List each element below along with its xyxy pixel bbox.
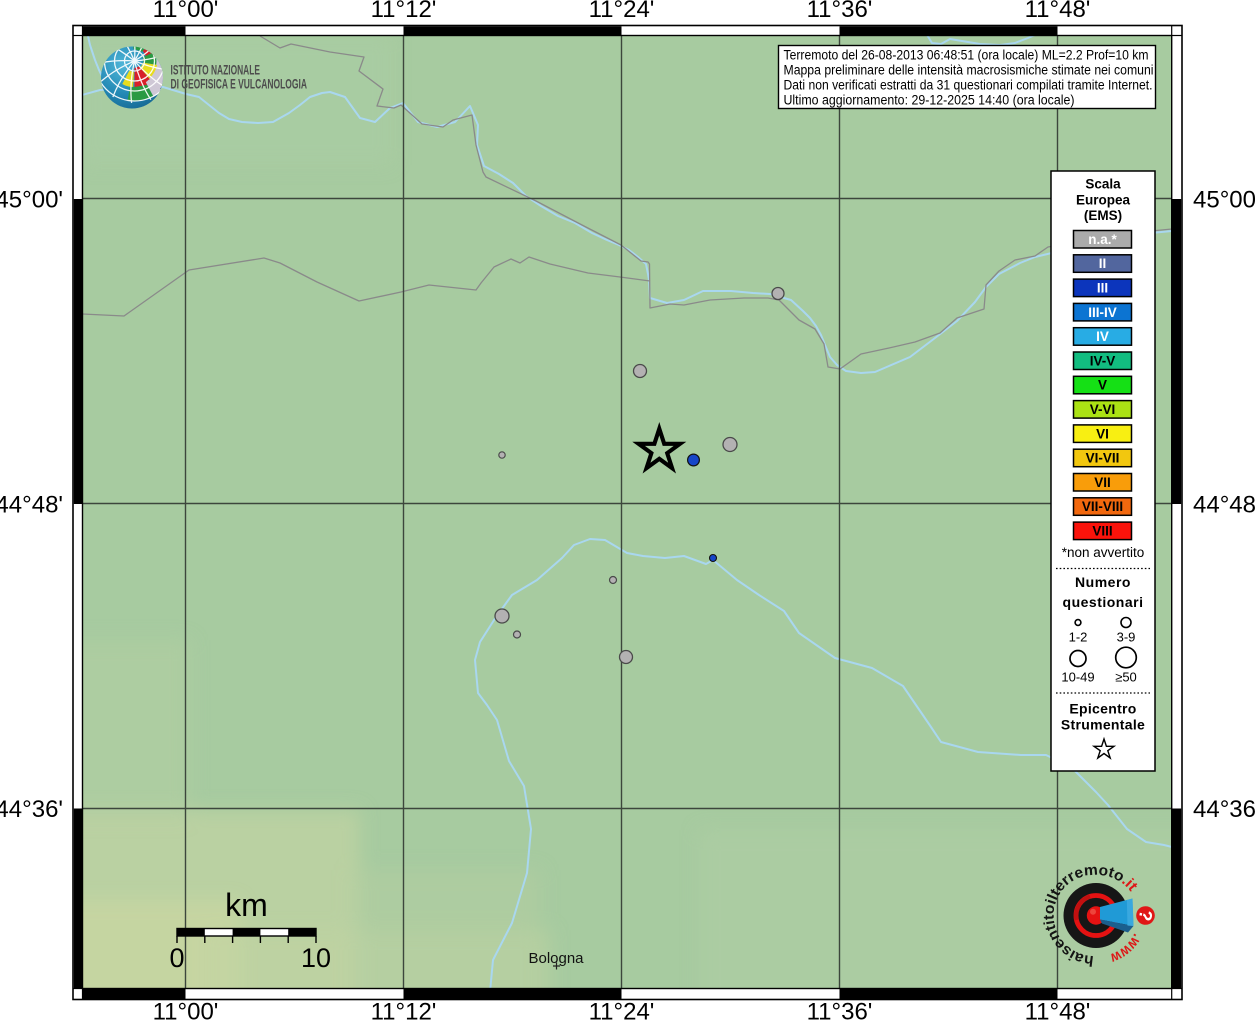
svg-text:≥50: ≥50 xyxy=(1115,670,1137,685)
svg-text:DI GEOFISICA E VULCANOLOGIA: DI GEOFISICA E VULCANOLOGIA xyxy=(171,77,308,92)
svg-text:IV: IV xyxy=(1096,329,1109,344)
svg-text:II: II xyxy=(1099,256,1107,271)
svg-text:V: V xyxy=(1098,378,1107,393)
svg-text:n.a.*: n.a.* xyxy=(1088,232,1117,247)
svg-text:11°36': 11°36' xyxy=(807,999,873,1024)
svg-text:0: 0 xyxy=(169,943,184,973)
svg-text:11°24': 11°24' xyxy=(589,0,655,23)
svg-text:VII: VII xyxy=(1094,475,1111,490)
svg-text:Mappa preliminare delle intens: Mappa preliminare delle intensità macros… xyxy=(784,63,1154,78)
svg-text:10-49: 10-49 xyxy=(1061,670,1094,685)
svg-text:VII-VIII: VII-VIII xyxy=(1082,499,1123,514)
svg-text:Ultimo aggiornamento: 29-12-20: Ultimo aggiornamento: 29-12-2025 14:40 (… xyxy=(784,93,1075,108)
svg-text:Epicentro: Epicentro xyxy=(1069,701,1136,717)
svg-text:km: km xyxy=(225,887,268,923)
svg-text:11°00': 11°00' xyxy=(153,999,219,1024)
svg-text:*non avvertito: *non avvertito xyxy=(1062,545,1145,560)
svg-text:44°36': 44°36' xyxy=(0,796,63,823)
svg-text:11°36': 11°36' xyxy=(807,0,873,23)
svg-text:45°00': 45°00' xyxy=(1193,187,1255,214)
svg-text:ISTITUTO NAZIONALE: ISTITUTO NAZIONALE xyxy=(171,63,261,78)
svg-text:11°12': 11°12' xyxy=(371,999,437,1024)
svg-text:questionari: questionari xyxy=(1063,594,1144,610)
svg-text:Scala: Scala xyxy=(1085,177,1121,192)
svg-text:VIII: VIII xyxy=(1092,524,1112,539)
svg-text:1-2: 1-2 xyxy=(1069,630,1088,645)
svg-text:Terremoto del 26-08-2013 06:48: Terremoto del 26-08-2013 06:48:51 (ora l… xyxy=(784,48,1149,63)
svg-text:Numero: Numero xyxy=(1075,574,1131,590)
svg-text:11°00': 11°00' xyxy=(153,0,219,23)
svg-text:III-IV: III-IV xyxy=(1088,305,1117,320)
svg-text:VI: VI xyxy=(1096,426,1109,441)
svg-text:IV-V: IV-V xyxy=(1090,353,1116,368)
svg-text:VI-VII: VI-VII xyxy=(1086,451,1120,466)
svg-text:44°48': 44°48' xyxy=(1193,492,1255,519)
svg-text:10: 10 xyxy=(301,943,331,973)
svg-text:III: III xyxy=(1097,281,1108,296)
svg-text:V-VI: V-VI xyxy=(1090,402,1116,417)
svg-text:Europea: Europea xyxy=(1076,193,1131,208)
svg-text:11°24': 11°24' xyxy=(589,999,655,1024)
svg-text:Dati non verificati estratti d: Dati non verificati estratti da 31 quest… xyxy=(784,78,1153,93)
svg-text:11°48': 11°48' xyxy=(1025,999,1091,1024)
svg-text:(EMS): (EMS) xyxy=(1084,208,1122,223)
svg-text:44°36': 44°36' xyxy=(1193,796,1255,823)
svg-text:11°12': 11°12' xyxy=(371,0,437,23)
svg-text:44°48': 44°48' xyxy=(0,492,63,519)
svg-text:3-9: 3-9 xyxy=(1117,630,1136,645)
svg-text:Strumentale: Strumentale xyxy=(1061,717,1145,733)
svg-text:45°00': 45°00' xyxy=(0,187,63,214)
svg-text:11°48': 11°48' xyxy=(1025,0,1091,23)
